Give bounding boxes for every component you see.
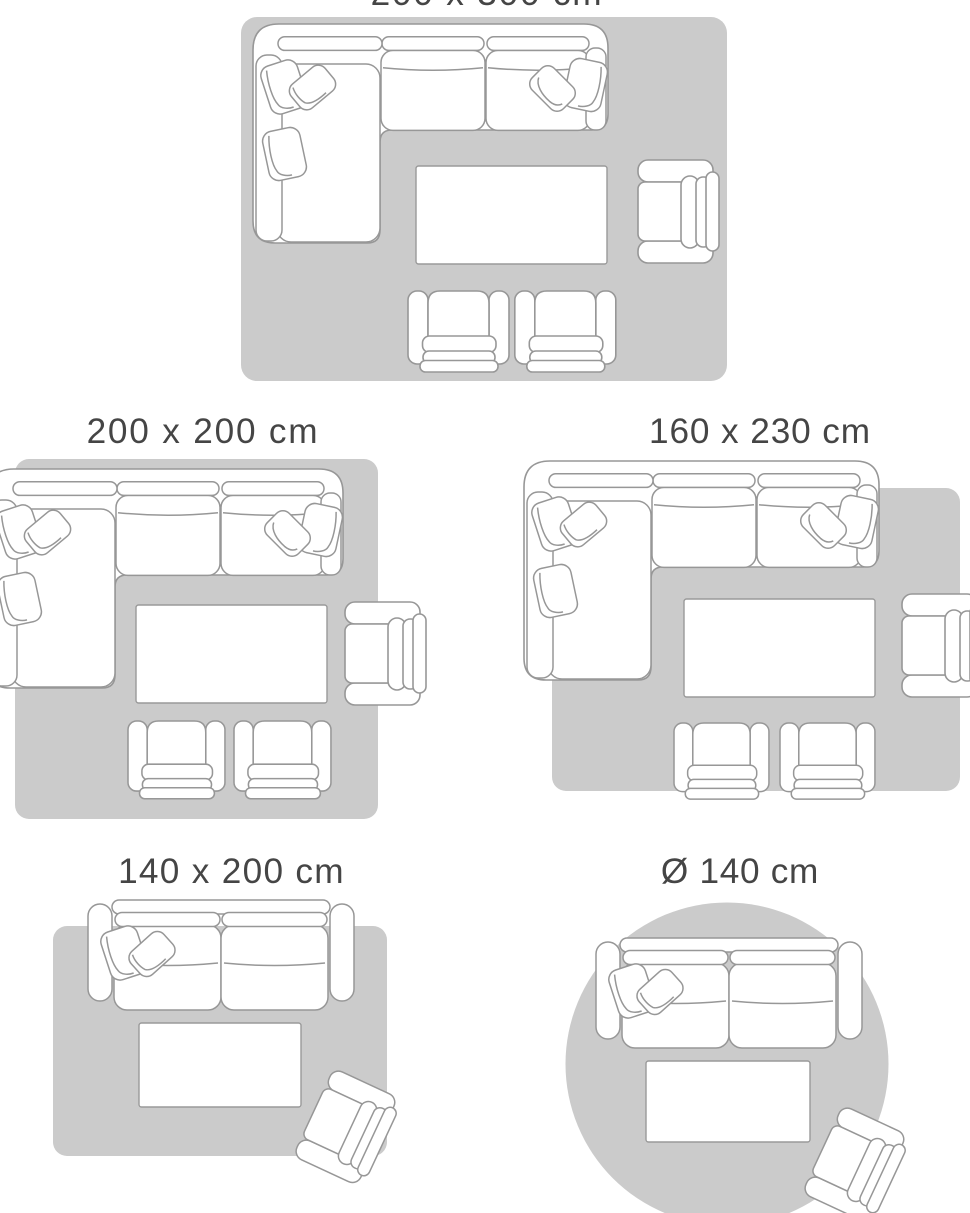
svg-text:200 x 300 cm: 200 x 300 cm — [371, 0, 604, 13]
svg-text:140 x 200 cm: 140 x 200 cm — [118, 852, 345, 891]
svg-text:Ø 140 cm: Ø 140 cm — [661, 852, 819, 891]
svg-text:160 x 230 cm: 160 x 230 cm — [649, 412, 871, 451]
svg-text:200 x 200 cm: 200 x 200 cm — [87, 412, 320, 451]
